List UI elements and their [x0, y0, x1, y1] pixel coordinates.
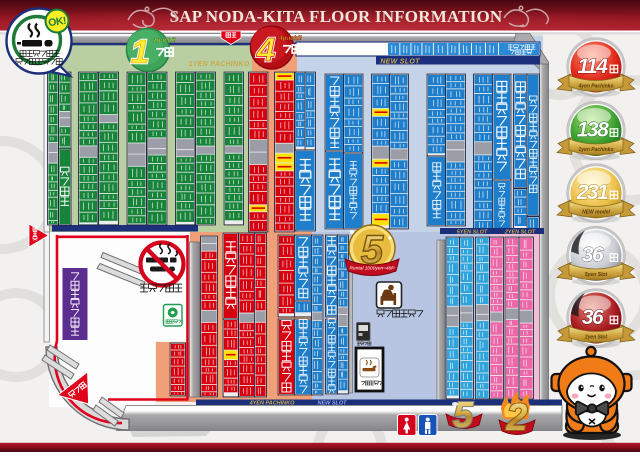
svg-text:5YEN SLOT: 5YEN SLOT: [457, 230, 488, 236]
svg-text:5yen Slot: 5yen Slot: [585, 272, 608, 278]
svg-text:1: 1: [131, 33, 149, 70]
svg-text:2: 2: [505, 397, 527, 439]
svg-text:4YEN PACHINKO: 4YEN PACHINKO: [249, 401, 296, 407]
svg-text:36: 36: [582, 244, 604, 267]
svg-text:114: 114: [578, 55, 609, 78]
svg-text:1yen Pachinko: 1yen Pachinko: [578, 147, 613, 153]
svg-text:NEW model: NEW model: [582, 210, 610, 216]
svg-text:138: 138: [577, 119, 609, 142]
svg-text:NEW SLOT: NEW SLOT: [380, 59, 420, 66]
svg-text:2YEN SLOT: 2YEN SLOT: [504, 230, 536, 236]
svg-text:NEW SLOT: NEW SLOT: [317, 401, 347, 407]
svg-text:1YEN PACHINKO: 1YEN PACHINKO: [189, 61, 250, 68]
svg-text:4: 4: [256, 31, 275, 68]
svg-text:231: 231: [576, 181, 608, 204]
svg-text:Rental 1000yen=48P: Rental 1000yen=48P: [350, 266, 396, 272]
svg-text:4pachi!: 4pachi!: [278, 35, 303, 42]
svg-text:5: 5: [453, 394, 474, 435]
svg-text:4yen Pachinko: 4yen Pachinko: [577, 84, 613, 90]
svg-text:1pachi!: 1pachi!: [153, 37, 177, 44]
svg-text:SAP NODA-KITA FLOOR INFORMATIO: SAP NODA-KITA FLOOR INFORMATION: [170, 7, 503, 26]
svg-text:36: 36: [582, 306, 604, 329]
svg-text:2yen Slot: 2yen Slot: [584, 335, 608, 341]
svg-text:OK!: OK!: [48, 15, 67, 29]
